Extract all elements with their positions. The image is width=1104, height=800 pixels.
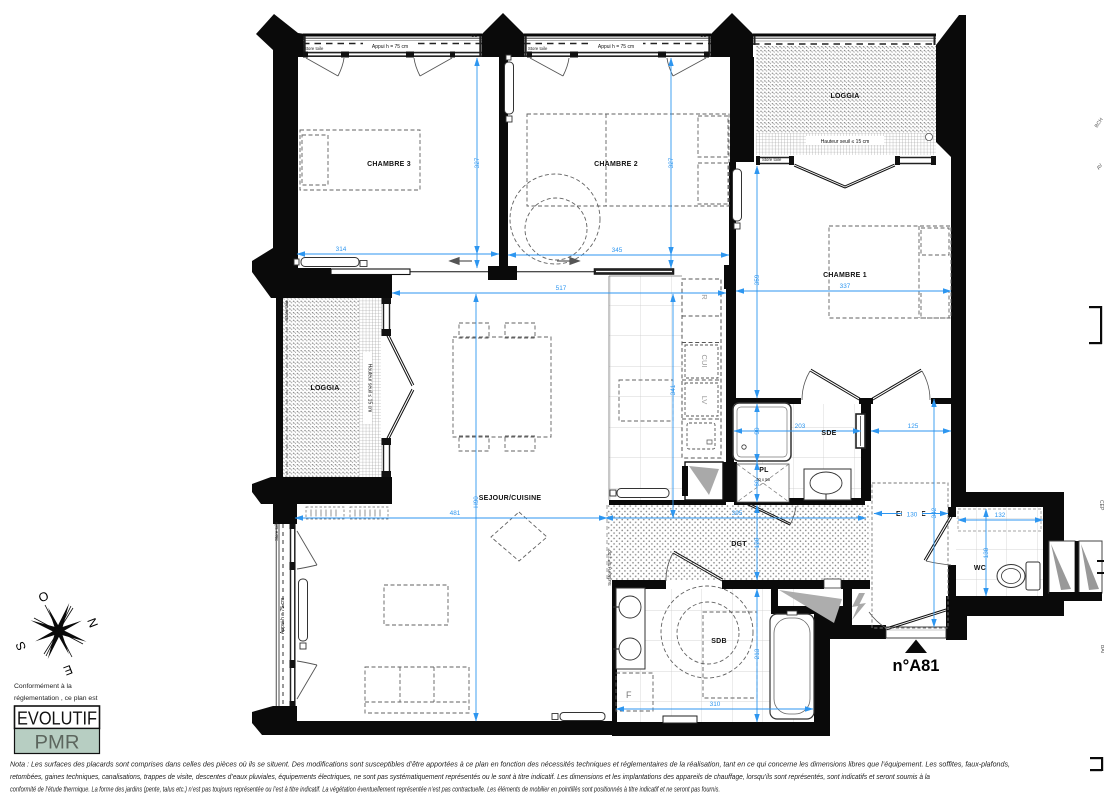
svg-text:359: 359 [754,274,761,285]
svg-text:Store toile: Store toile [304,46,324,51]
svg-text:R: R [700,294,709,300]
svg-text:Nota : Les surfaces des placar: Nota : Les surfaces des placards sont co… [10,760,1010,769]
svg-text:130: 130 [907,512,918,519]
svg-text:213: 213 [754,648,761,659]
svg-text:n°A81: n°A81 [893,657,940,675]
svg-text:CHAMBRE 3: CHAMBRE 3 [367,161,411,168]
svg-text:481: 481 [450,510,461,517]
svg-text:Surface H.SP 2.20: Surface H.SP 2.20 [607,550,612,586]
svg-text:EVOLUTIF: EVOLUTIF [17,708,97,729]
svg-text:SDB: SDB [711,638,727,645]
svg-text:SDE: SDE [821,430,836,437]
svg-text:CHAMBRE 2: CHAMBRE 2 [594,161,638,168]
svg-text:Store toile: Store toile [762,157,782,162]
svg-text:Appui h = 75 cm: Appui h = 75 cm [372,44,408,50]
svg-text:337: 337 [840,283,851,290]
svg-text:WC: WC [974,565,986,572]
svg-text:SEJOUR/CUISINE: SEJOUR/CUISINE [479,495,542,502]
svg-text:Store toile: Store toile [274,521,279,541]
svg-text:Store toile: Store toile [284,300,289,320]
svg-text:GC: GC [700,33,706,38]
svg-text:CEP: CEP [1098,500,1104,511]
svg-text:Hauteur seuil ≤ 15 cm: Hauteur seuil ≤ 15 cm [367,364,373,413]
svg-text:341: 341 [670,384,677,395]
svg-text:BAT: BAT [1099,645,1104,654]
svg-text:310: 310 [710,701,721,708]
svg-text:Appui h = 75 cm: Appui h = 75 cm [598,44,634,50]
svg-text:Conformément à la: Conformément à la [14,683,72,690]
svg-text:342: 342 [931,507,938,518]
svg-text:345: 345 [612,247,623,254]
svg-text:90: 90 [754,427,761,435]
svg-text:314: 314 [336,246,347,253]
svg-text:132: 132 [995,512,1006,519]
svg-text:LOGGIA: LOGGIA [830,93,859,100]
svg-text:125: 125 [908,423,919,430]
svg-text:Store toile: Store toile [528,46,548,51]
svg-text:retombées, gaines techniques,: retombées, gaines techniques, canalisati… [10,772,930,781]
svg-text:327: 327 [474,157,481,168]
svg-text:CUI: CUI [700,355,709,368]
svg-text:CHAMBRE 1: CHAMBRE 1 [823,272,867,279]
svg-text:138: 138 [983,547,990,558]
svg-text:Appui h = 75 cm: Appui h = 75 cm [280,598,286,634]
svg-text:conformité de l’étude thermiqu: conformité de l’étude thermique. La form… [10,785,720,794]
svg-text:F: F [626,690,632,700]
svg-text:LV: LV [700,396,709,405]
svg-text:PL: PL [759,467,769,474]
svg-text:395: 395 [732,510,743,517]
svg-text:517: 517 [556,285,567,292]
svg-text:120: 120 [754,537,761,548]
svg-text:LOGGIA: LOGGIA [310,385,339,392]
svg-text:GC: GC [471,33,477,38]
svg-text:327: 327 [668,157,675,168]
svg-text:70 x 58: 70 x 58 [756,477,771,482]
svg-text:PMR: PMR [35,733,80,754]
svg-text:Hauteur seuil ≤ 15 cm: Hauteur seuil ≤ 15 cm [821,139,870,145]
svg-text:réglementation , ce plan est: réglementation , ce plan est [14,695,98,702]
svg-text:DGT: DGT [731,541,747,548]
svg-text:203: 203 [795,423,806,430]
